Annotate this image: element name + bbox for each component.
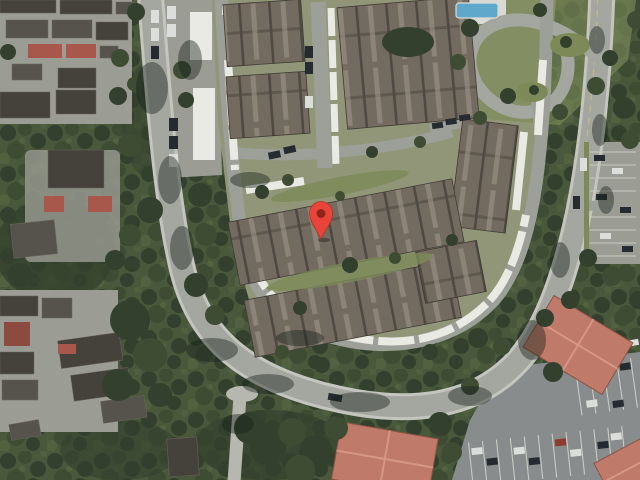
- condo-row-nw-b: [226, 71, 310, 138]
- carport-central: [331, 8, 336, 165]
- condo-row-southeast: [416, 240, 487, 303]
- carport-lane-south: [193, 88, 215, 160]
- internal-drive-vertical: [318, 2, 325, 168]
- satellite-imagery: [0, 0, 640, 480]
- swimming-pool: [456, 3, 498, 18]
- condo-row-nw-a: [223, 0, 305, 67]
- courtyard-trees: [382, 27, 434, 57]
- map-canvas[interactable]: [0, 0, 640, 480]
